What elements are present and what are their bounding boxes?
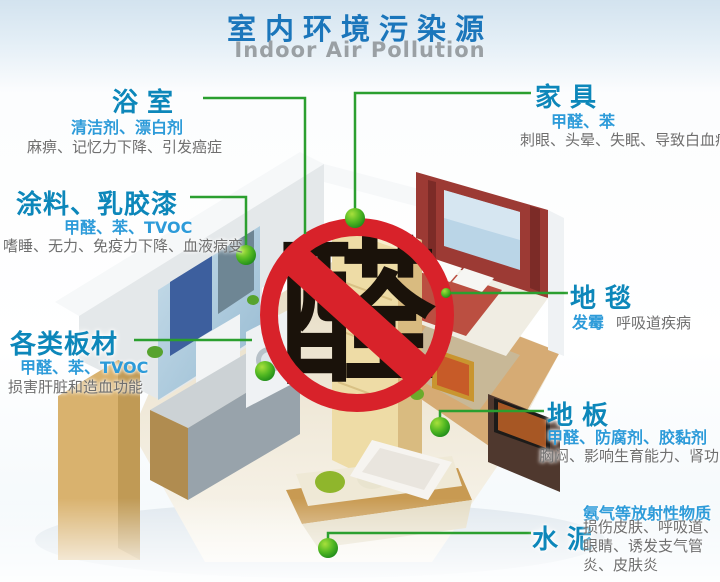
line-floor — [440, 411, 544, 423]
dot-carpet — [441, 288, 451, 298]
dot-floor — [430, 417, 450, 437]
label-carpet-detail: 发霉 呼吸道疾病 — [572, 309, 691, 333]
label-carpet-pollutants: 发霉 — [572, 309, 604, 333]
label-floor-effects: 胸闷、影响生育能力、肾功能 — [539, 445, 720, 466]
label-bathroom-effects: 麻痹、记忆力下降、引发癌症 — [27, 136, 222, 157]
label-boards-effects: 损害肝脏和造血功能 — [8, 376, 143, 397]
label-paint-effects: 嗜睡、无力、免疫力下降、血液病变 — [3, 235, 243, 256]
infographic-canvas: 醛 室内环境污染源 Indoor Air Pollution — [0, 0, 720, 582]
label-bathroom-pollutants: 清洁剂、漂白剂 — [71, 114, 183, 138]
page-subtitle: Indoor Air Pollution — [0, 38, 720, 62]
line-cement — [328, 533, 531, 544]
label-cement-effects: 损伤皮肤、呼吸道、眼睛、诱发支气管炎、皮肤炎 — [583, 518, 720, 575]
dot-furniture — [345, 208, 365, 228]
dot-boards — [255, 361, 275, 381]
label-furniture-effects: 刺眼、头晕、失眠、导致白血病 — [520, 129, 720, 150]
label-carpet-effects: 呼吸道疾病 — [616, 312, 691, 333]
line-bathroom — [203, 98, 305, 234]
label-boards-pollutants: 甲醛、苯、TVOC — [20, 354, 148, 378]
line-furniture — [355, 93, 531, 209]
dot-cement — [318, 538, 338, 558]
